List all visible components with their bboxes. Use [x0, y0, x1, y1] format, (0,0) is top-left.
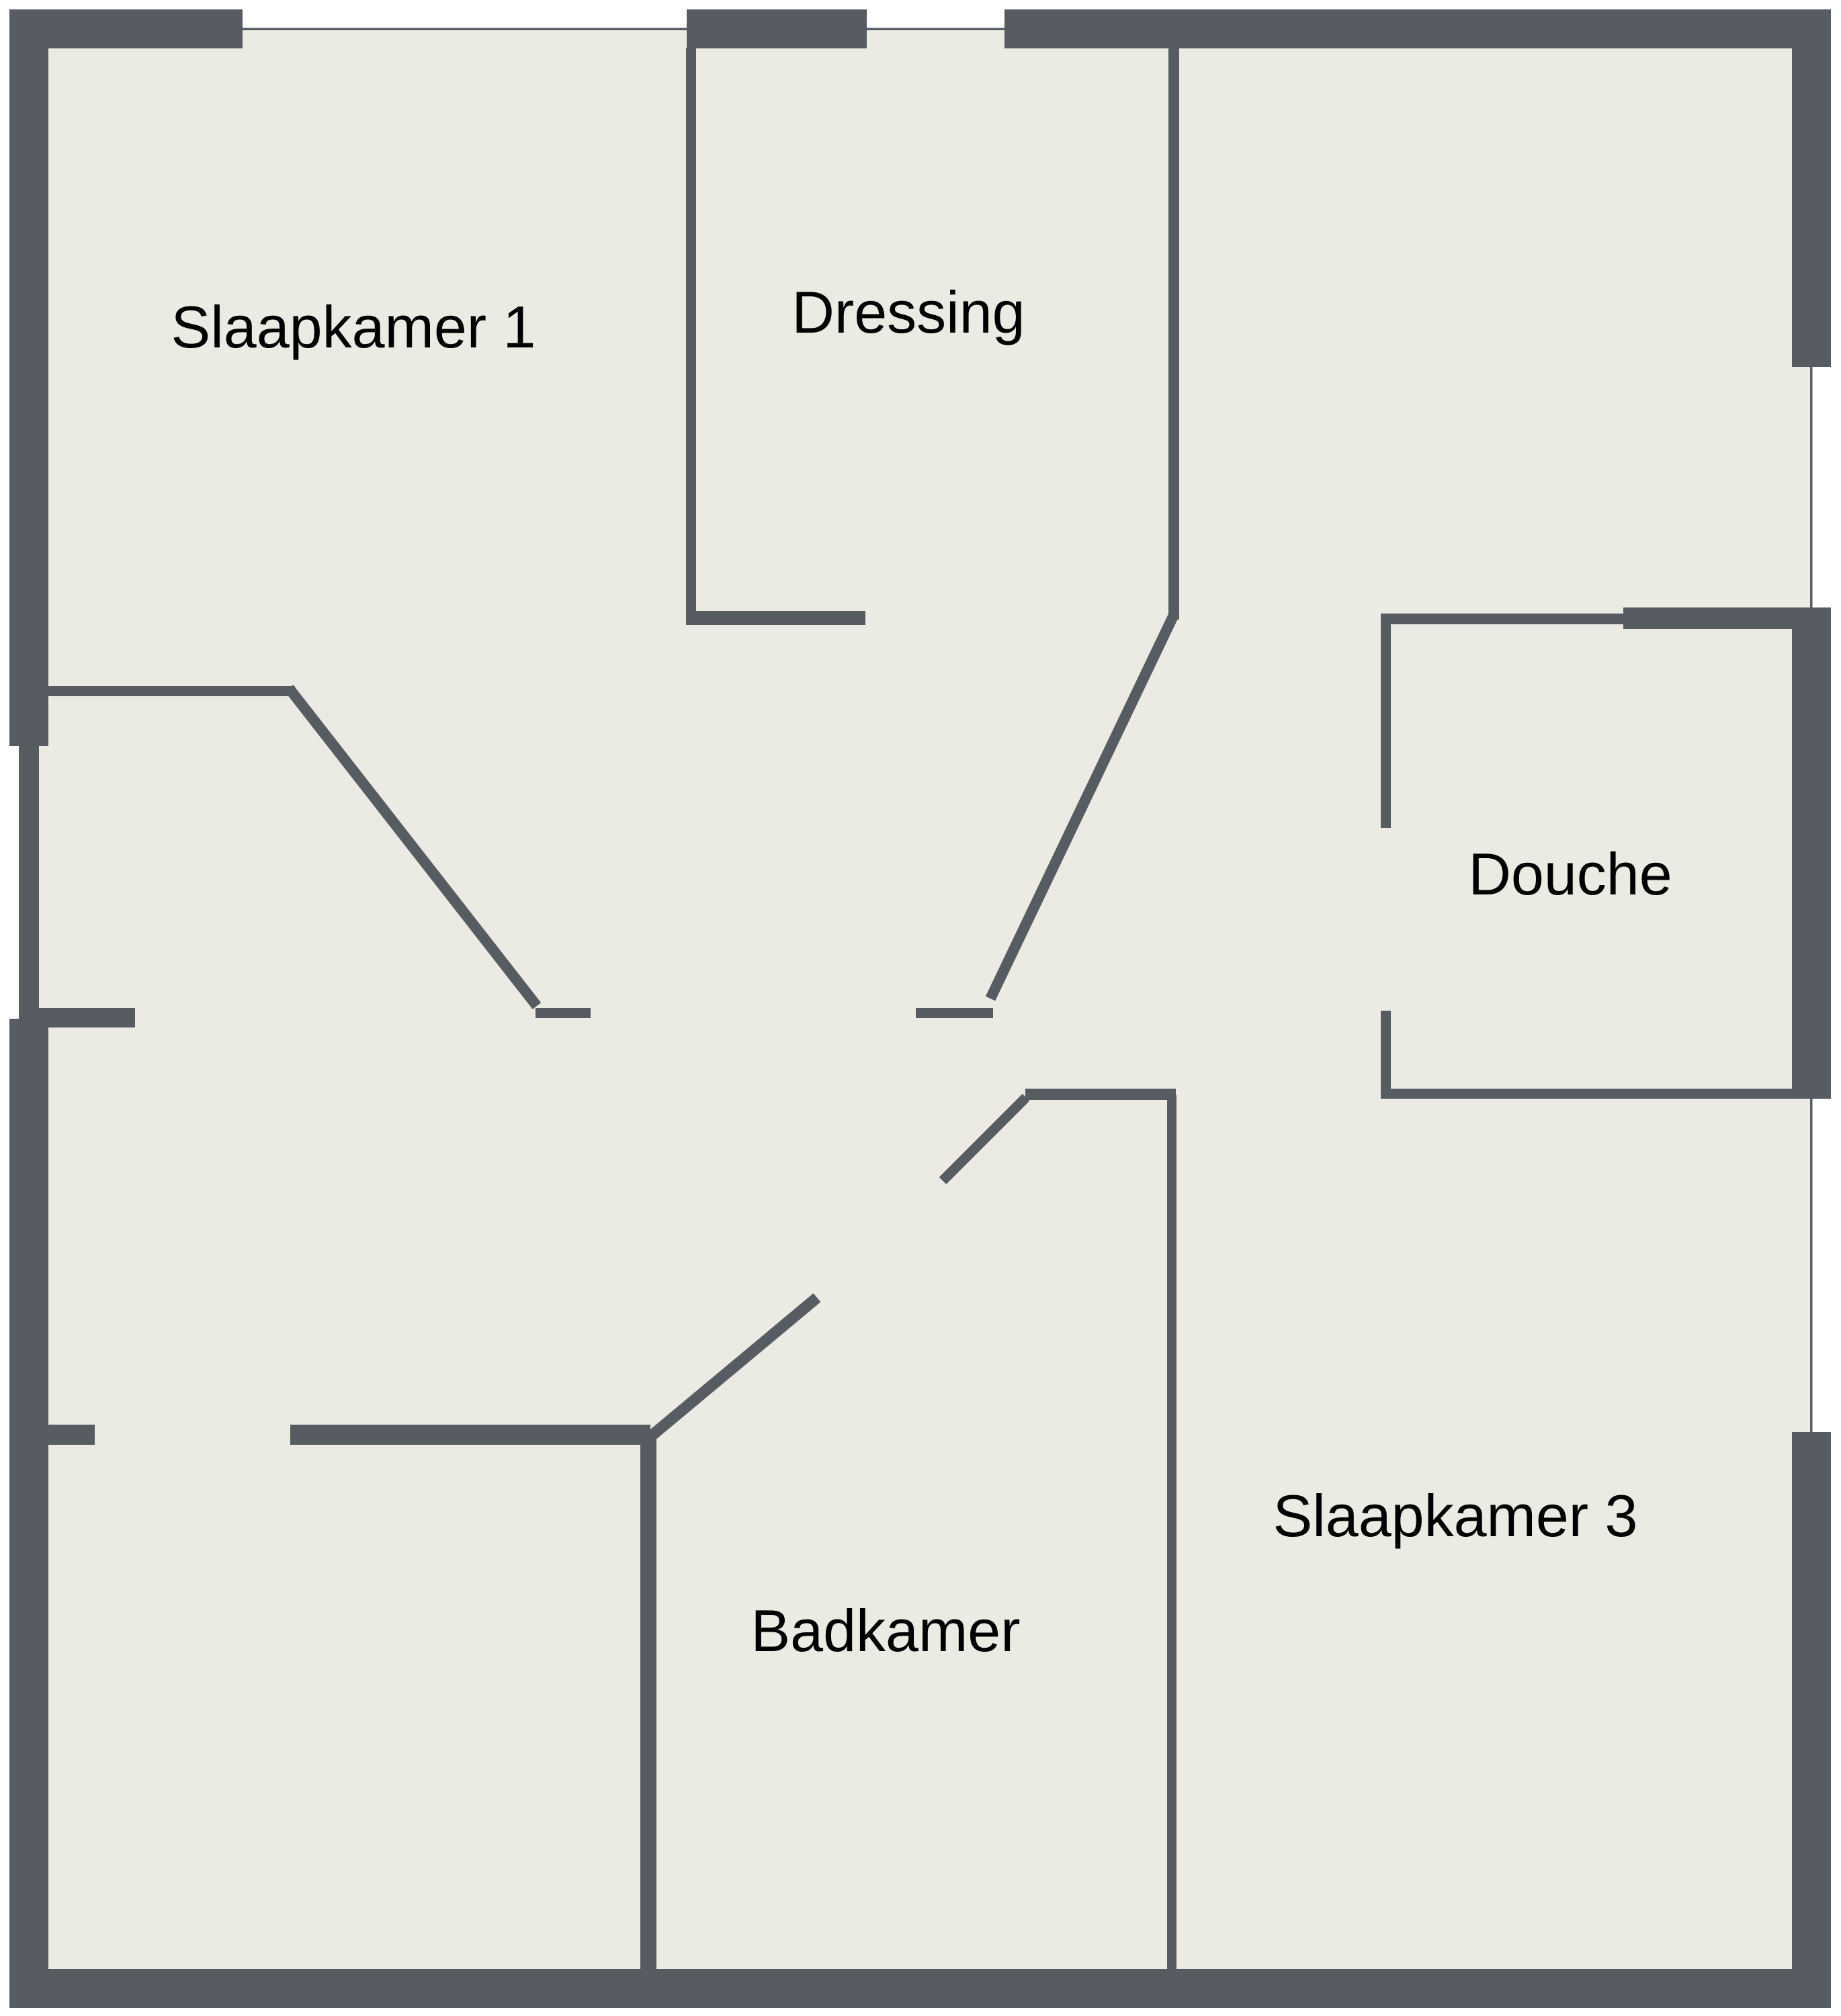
svg-text:Slaapkamer 3: Slaapkamer 3: [1273, 1482, 1638, 1549]
svg-text:Badkamer: Badkamer: [751, 1597, 1020, 1664]
svg-text:Slaapkamer 1: Slaapkamer 1: [171, 294, 536, 360]
svg-text:Dressing: Dressing: [791, 279, 1025, 345]
svg-text:Douche: Douche: [1468, 841, 1672, 907]
